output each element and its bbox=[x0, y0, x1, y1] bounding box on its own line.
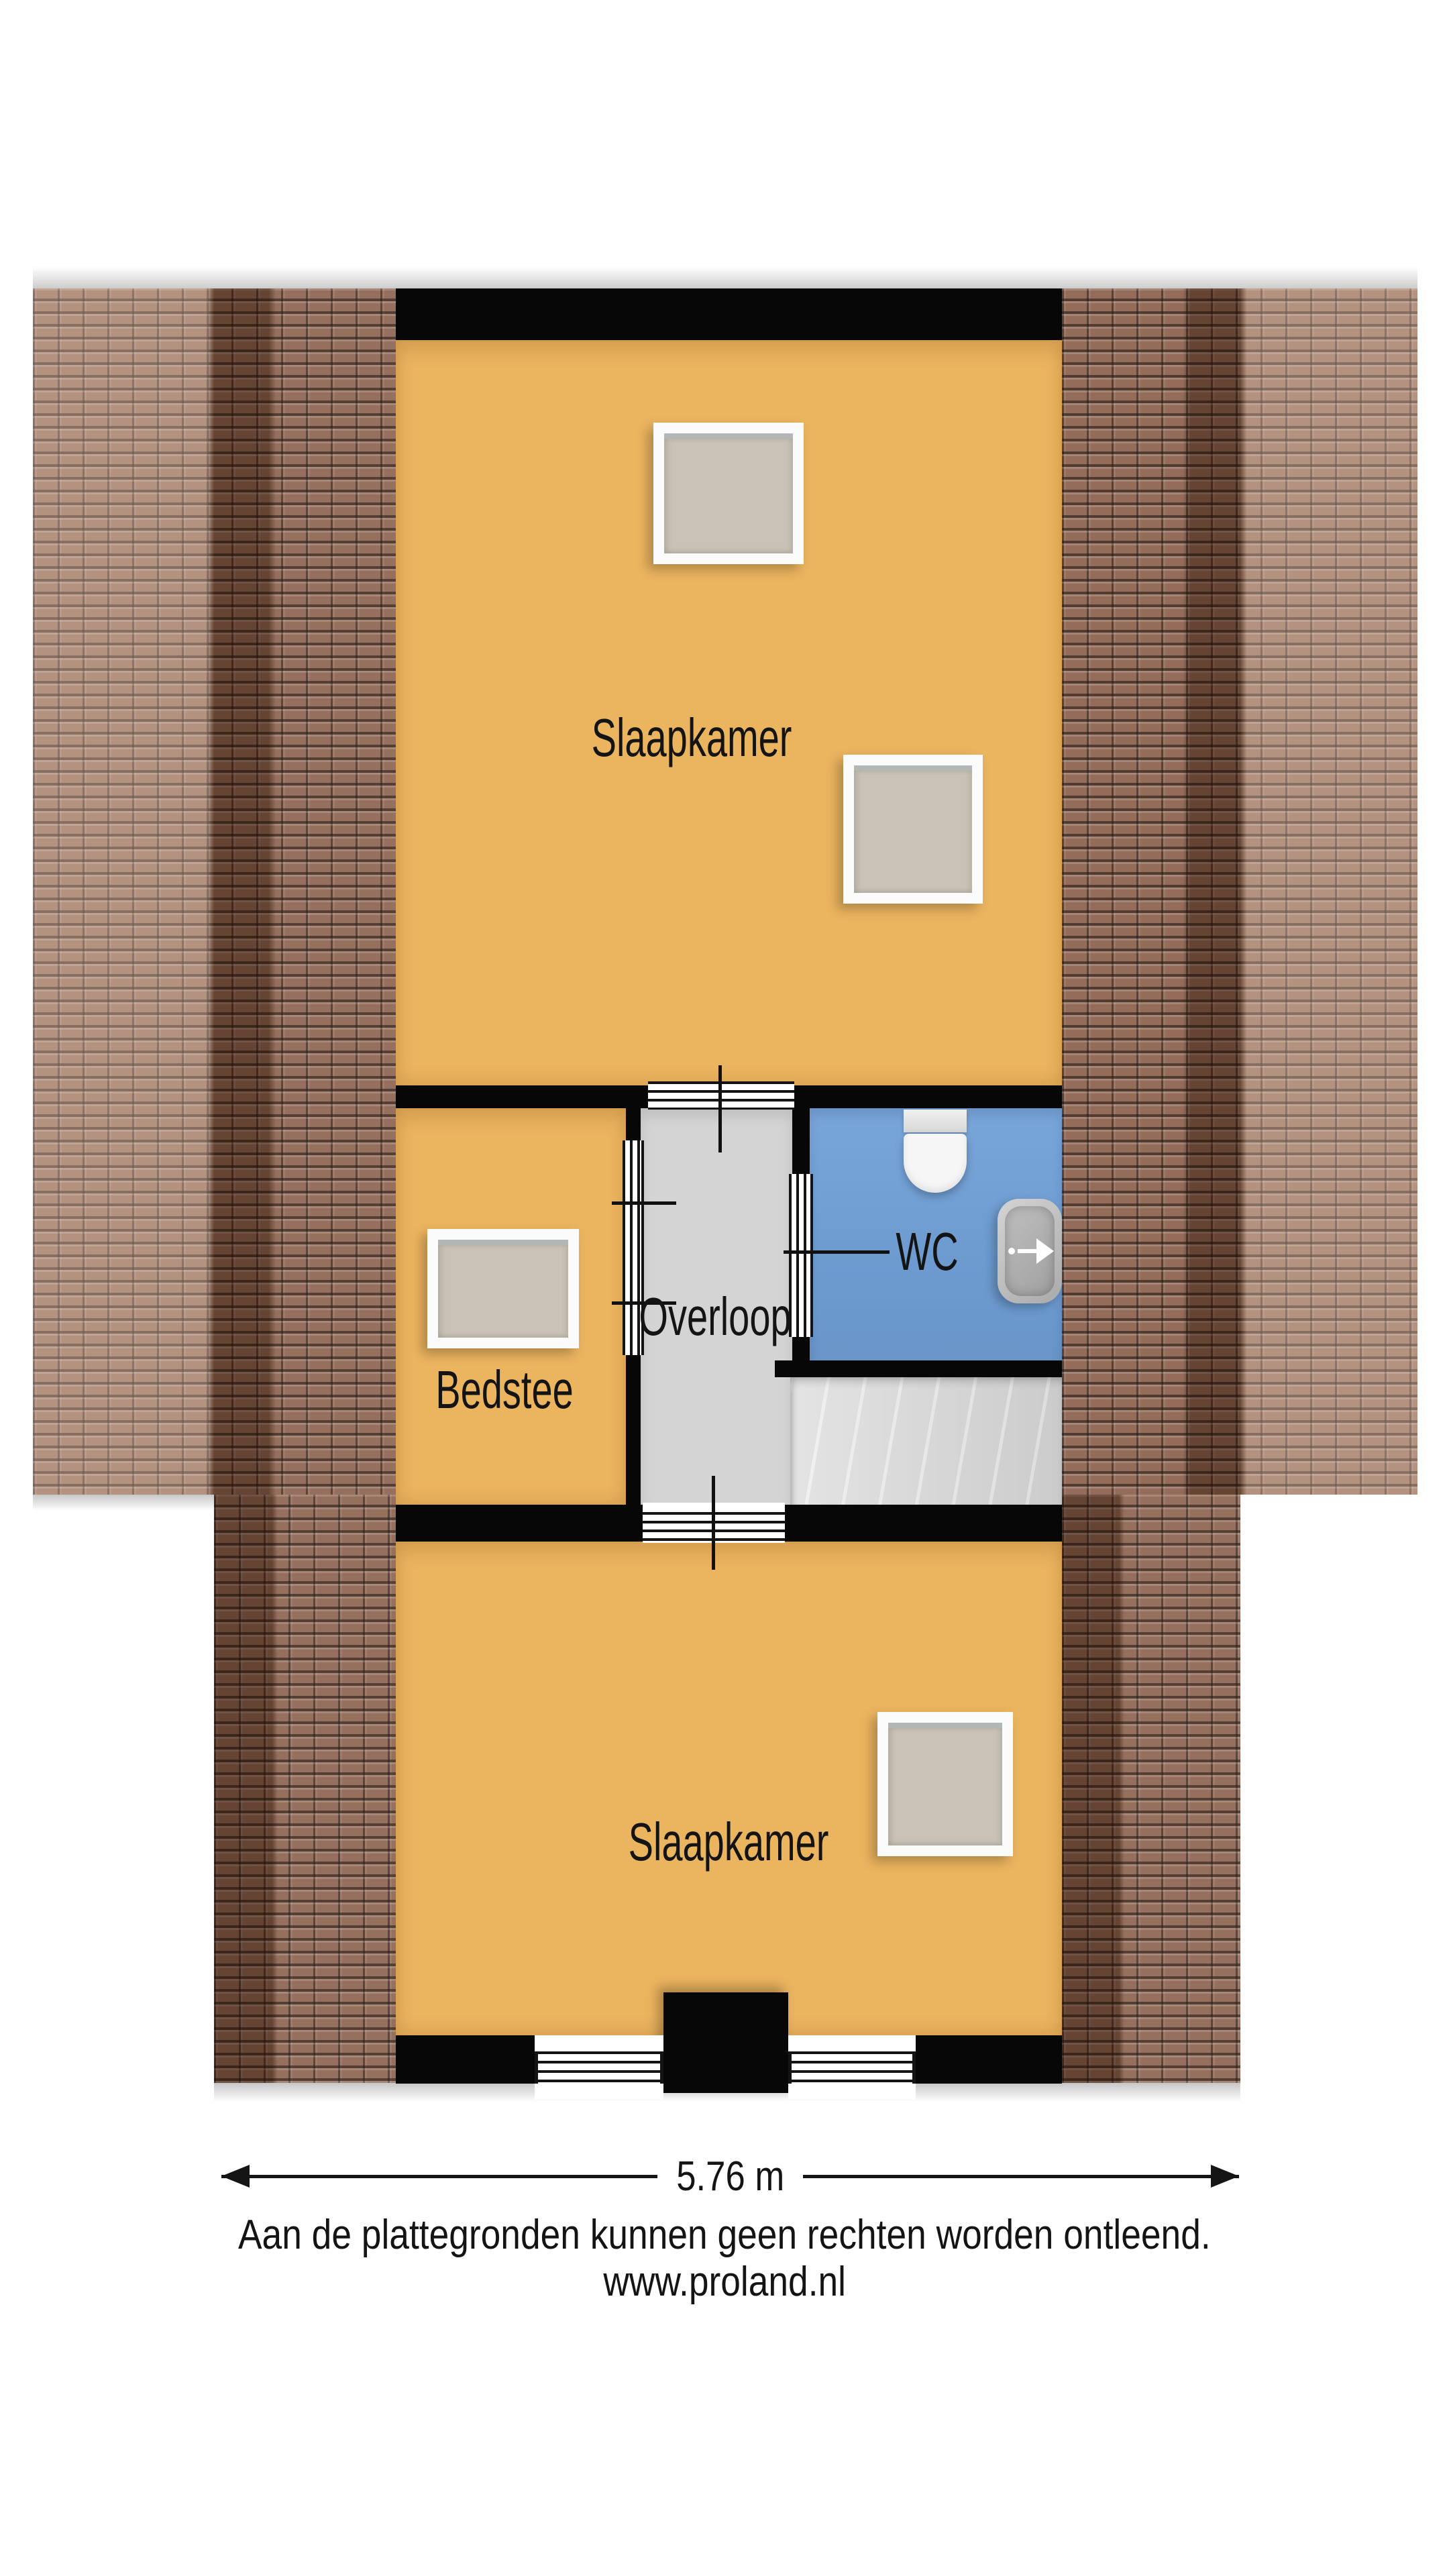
wall-bottom-exterior-right bbox=[916, 2035, 1062, 2084]
dimension-arrow-right bbox=[803, 2175, 1239, 2178]
toilet-icon bbox=[904, 1110, 967, 1193]
stairs-treads bbox=[790, 1377, 1062, 1506]
section-mark-right-wall bbox=[784, 1250, 890, 1254]
wall-overloop-left-lower bbox=[626, 1355, 641, 1506]
chimney-block bbox=[663, 1992, 788, 2093]
section-mark-bottom-door bbox=[712, 1476, 715, 1570]
dimension-label: 5.76 m bbox=[668, 2153, 792, 2200]
label-slaapkamer-bottom: Slaapkamer bbox=[629, 1815, 829, 1869]
section-mark-left-wall-1 bbox=[612, 1201, 676, 1205]
toilet-tank bbox=[904, 1110, 967, 1132]
wall-mid-top-left bbox=[396, 1085, 651, 1108]
wall-mid-bottom-right bbox=[785, 1505, 1062, 1542]
roof-step-shadow bbox=[33, 1495, 214, 1511]
wall-overloop-left-upper bbox=[626, 1107, 641, 1142]
roof-tiles-bottom-left bbox=[214, 1495, 396, 2083]
wall-mid-top-right bbox=[792, 1085, 1062, 1108]
footer-website-text: www.proland.nl bbox=[603, 2258, 846, 2306]
skylight-glass bbox=[854, 765, 972, 893]
roof-tiles-bottom-right bbox=[1062, 1495, 1240, 2083]
roof-tiles-top-left bbox=[33, 288, 396, 1495]
plan-top-shadow bbox=[33, 267, 1417, 288]
wall-top-exterior bbox=[396, 288, 1062, 340]
skylight-window-top-2 bbox=[843, 755, 983, 904]
window-glazing-bars bbox=[535, 2051, 663, 2084]
toilet-bowl bbox=[904, 1134, 967, 1193]
dimension-line-width: 5.76 m bbox=[221, 2155, 1239, 2198]
sink-tap-dot bbox=[1008, 1248, 1015, 1254]
skylight-glass bbox=[664, 433, 793, 553]
floorplan-page: { "plan": { "type": "floorplan-top-down"… bbox=[0, 0, 1449, 2576]
footer-disclaimer-text: Aan de plattegronden kunnen geen rechten… bbox=[238, 2211, 1211, 2259]
label-wc: WC bbox=[896, 1225, 958, 1279]
footer-disclaimer: Aan de plattegronden kunnen geen rechten… bbox=[0, 2211, 1449, 2259]
skylight-glass bbox=[888, 1723, 1002, 1845]
dimension-arrow-left bbox=[221, 2175, 657, 2178]
skylight-glass bbox=[438, 1240, 568, 1338]
wall-bottom-exterior-left bbox=[396, 2035, 535, 2084]
window-bottom-left bbox=[535, 2035, 663, 2099]
sink-tap-arrow-shaft bbox=[1018, 1249, 1036, 1253]
sink-tap-arrow-head bbox=[1036, 1238, 1054, 1264]
window-glazing-bars bbox=[788, 2051, 916, 2084]
door-opening-wc bbox=[789, 1174, 813, 1337]
skylight-window-bottom bbox=[877, 1712, 1013, 1856]
label-bedstee: Bedstee bbox=[435, 1363, 573, 1417]
footer-website: www.proland.nl bbox=[0, 2258, 1449, 2306]
roof-tiles-top-right bbox=[1062, 288, 1417, 1495]
wall-overloop-right-upper bbox=[792, 1107, 810, 1174]
label-overloop: Overloop bbox=[639, 1290, 791, 1344]
wall-mid-bottom-left bbox=[396, 1505, 645, 1542]
skylight-window-top-1 bbox=[653, 423, 804, 564]
skylight-window-bedstee bbox=[427, 1229, 579, 1348]
wall-wc-bottom bbox=[775, 1360, 1062, 1377]
window-bottom-right bbox=[788, 2035, 916, 2099]
sink-icon bbox=[998, 1199, 1062, 1303]
label-slaapkamer-top: Slaapkamer bbox=[592, 711, 792, 765]
section-mark-top-door bbox=[718, 1065, 722, 1152]
